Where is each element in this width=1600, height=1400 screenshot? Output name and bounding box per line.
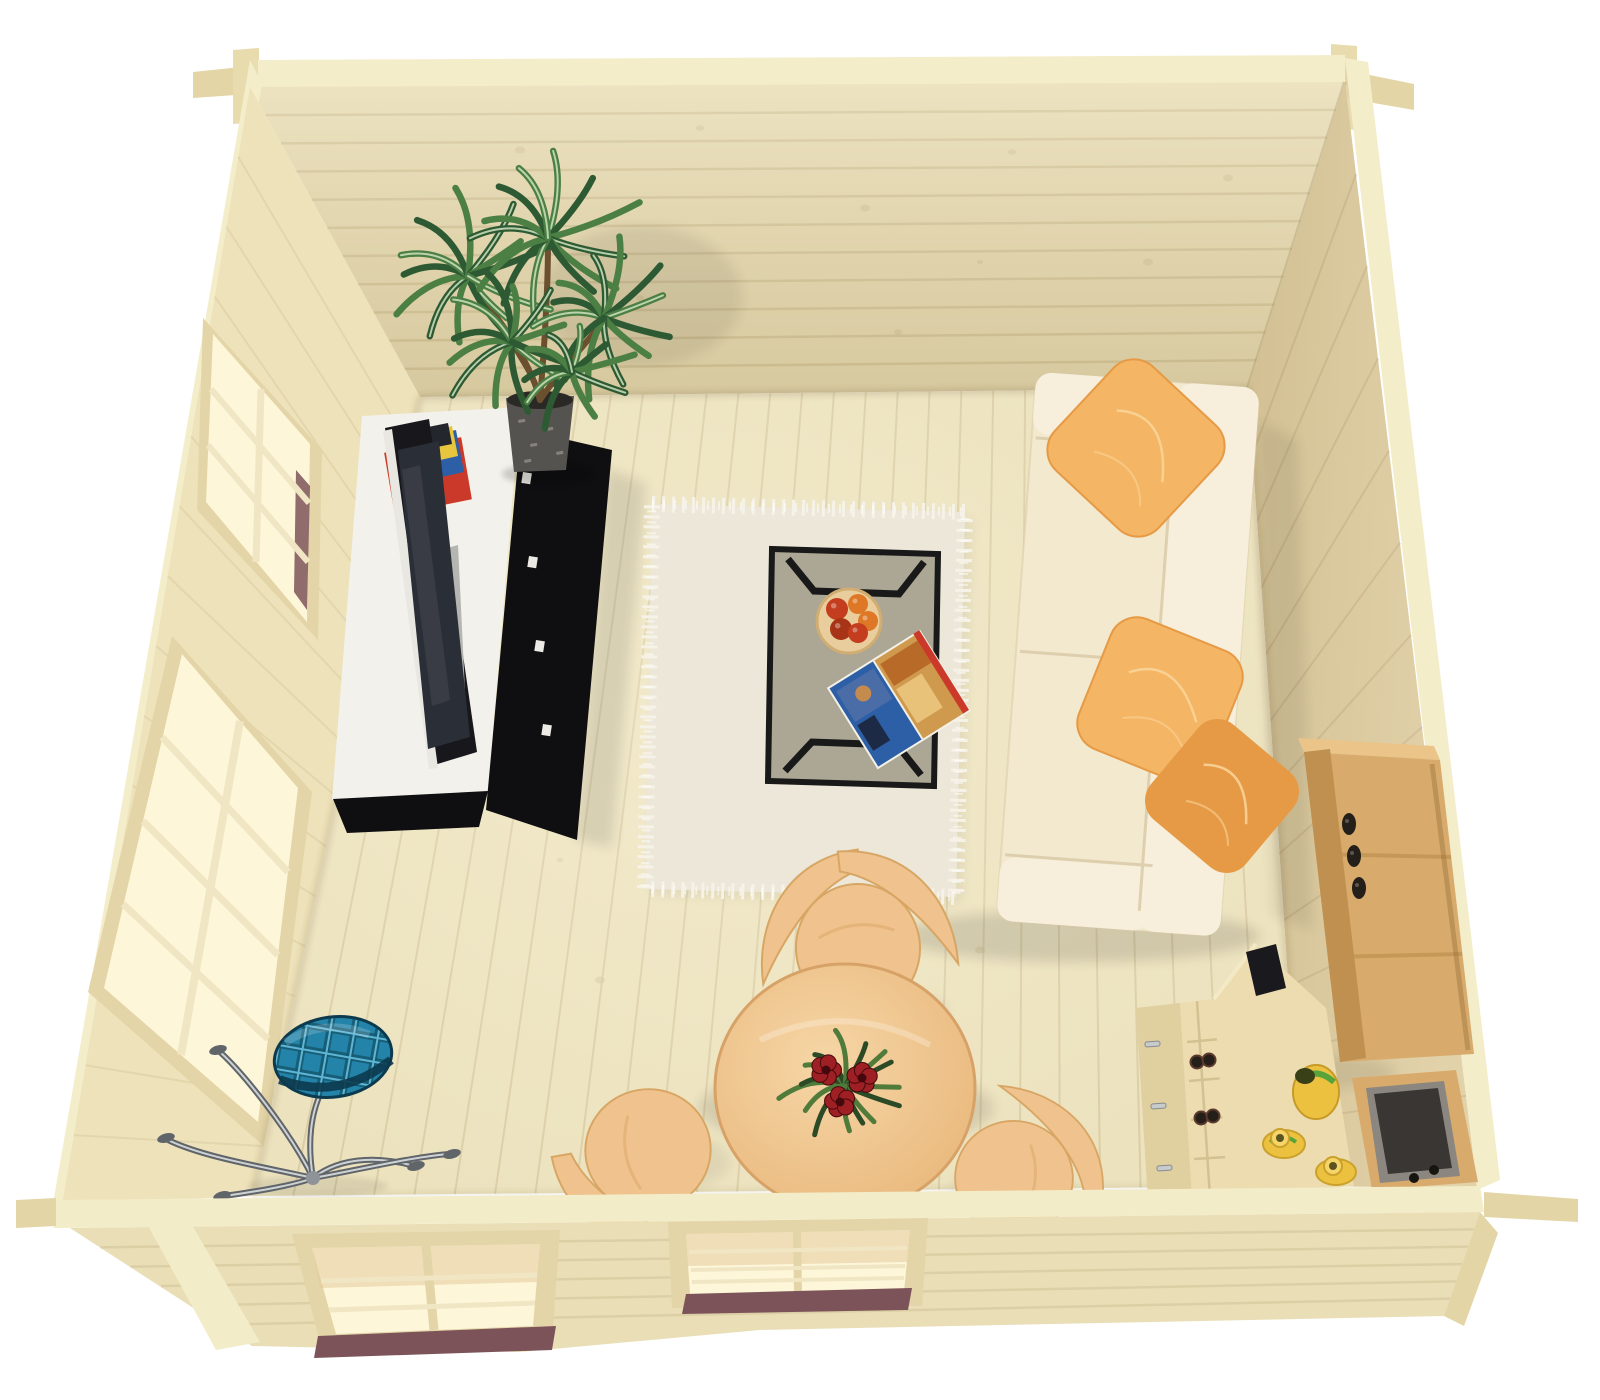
teapot-opening [1295, 1068, 1315, 1084]
bin-foot [1409, 1173, 1419, 1183]
bin-foot [1429, 1165, 1439, 1175]
lamp-hub [306, 1171, 320, 1185]
bottle [1352, 877, 1366, 899]
sofa-armrest-bottom [996, 856, 1152, 931]
flower-center [858, 1074, 867, 1083]
teacup-tea [1276, 1134, 1284, 1142]
panel-clip [534, 640, 545, 652]
wine-bottle [1195, 1112, 1208, 1125]
wine-bottle [1191, 1056, 1204, 1069]
beam-bottom-left [16, 1198, 56, 1228]
flower-center [836, 1098, 845, 1107]
fruit-highlight [863, 616, 868, 621]
drawer-handle [1157, 1165, 1172, 1171]
fruit-highlight [835, 623, 841, 629]
fruit-bowl [817, 589, 881, 653]
panel-clip [527, 556, 538, 568]
fruit [830, 618, 852, 640]
bottle-highlight [1355, 883, 1359, 887]
front-window-left [292, 1230, 560, 1358]
teacup-tea [1329, 1162, 1337, 1170]
scene-svg [0, 0, 1600, 1400]
far-wall [240, 55, 1345, 397]
wine-bottle [1207, 1110, 1220, 1123]
front-window-right [668, 1218, 928, 1314]
bottle [1347, 845, 1361, 867]
fruit-highlight [853, 599, 858, 604]
bottle-highlight [1345, 819, 1349, 823]
wine-bottle [1203, 1054, 1216, 1067]
fruit [826, 598, 848, 620]
fruit [848, 623, 868, 643]
tv-unit [332, 407, 646, 848]
drawer-handle [1145, 1041, 1160, 1047]
cabin-top-view-render [0, 0, 1600, 1400]
fruit-highlight [831, 603, 837, 609]
panel-clip [541, 724, 552, 736]
flower-center [822, 1066, 831, 1075]
drawer-handle [1151, 1103, 1166, 1109]
fruit [848, 594, 868, 614]
bottle [1342, 813, 1356, 835]
fruit-highlight [853, 628, 858, 633]
muntin [797, 1232, 798, 1293]
muntin [256, 389, 261, 562]
bottle-highlight [1350, 851, 1354, 855]
far-wall-shading [250, 82, 1345, 397]
